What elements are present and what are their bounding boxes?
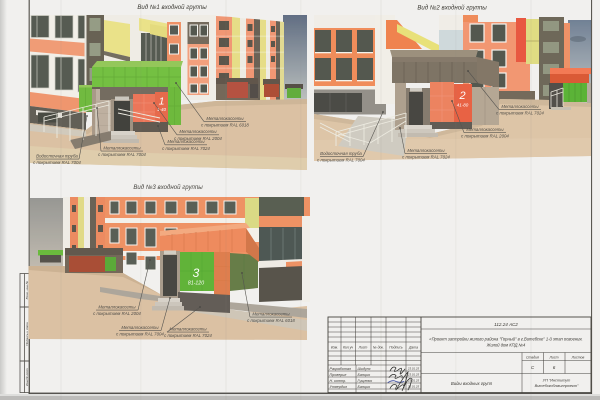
svg-text:Жилой дом КПД №4: Жилой дом КПД №4: [486, 343, 526, 348]
svg-text:Виды входных групп: Виды входных групп: [451, 381, 493, 386]
svg-text:Проверил: Проверил: [330, 373, 347, 377]
svg-text:Разработал: Разработал: [330, 367, 352, 371]
svg-text:Лист: Лист: [358, 346, 368, 350]
svg-text:УП "Институт: УП "Институт: [543, 379, 571, 383]
svg-text:Дата: Дата: [408, 346, 418, 350]
svg-text:Изм.: Изм.: [331, 346, 338, 350]
svg-text:6: 6: [553, 365, 556, 370]
svg-text:Утвердил: Утвердил: [330, 385, 348, 389]
svg-text:Н. контр.: Н. контр.: [330, 379, 347, 383]
svg-text:Подпись: Подпись: [389, 346, 403, 350]
svg-text:23.01.25: 23.01.25: [407, 373, 420, 377]
svg-text:Гущенко: Гущенко: [358, 379, 373, 383]
svg-text:Кол.уч: Кол.уч: [343, 346, 353, 350]
svg-text:Стадия: Стадия: [526, 356, 539, 360]
svg-text:Банцио: Банцио: [358, 385, 371, 389]
svg-text:Листов: Листов: [571, 356, 585, 360]
svg-text:Вид №1 входной группы: Вид №1 входной группы: [137, 4, 207, 11]
svg-text:№ док.: № док.: [373, 346, 384, 350]
svg-text:Шидунс: Шидунс: [358, 367, 371, 371]
svg-text:Банцио: Банцио: [358, 373, 371, 377]
svg-text:112.24 АС2: 112.24 АС2: [494, 322, 518, 327]
svg-text:Лист: Лист: [548, 356, 558, 360]
svg-text:Витебскоблжилпроект": Витебскоблжилпроект": [535, 384, 579, 388]
svg-text:Инв.№ подл.: Инв.№ подл.: [25, 367, 29, 385]
svg-text:23.01.25: 23.01.25: [407, 367, 420, 371]
svg-text:«Проект застройки жилого район: «Проект застройки жилого района "Горный"…: [429, 337, 582, 342]
